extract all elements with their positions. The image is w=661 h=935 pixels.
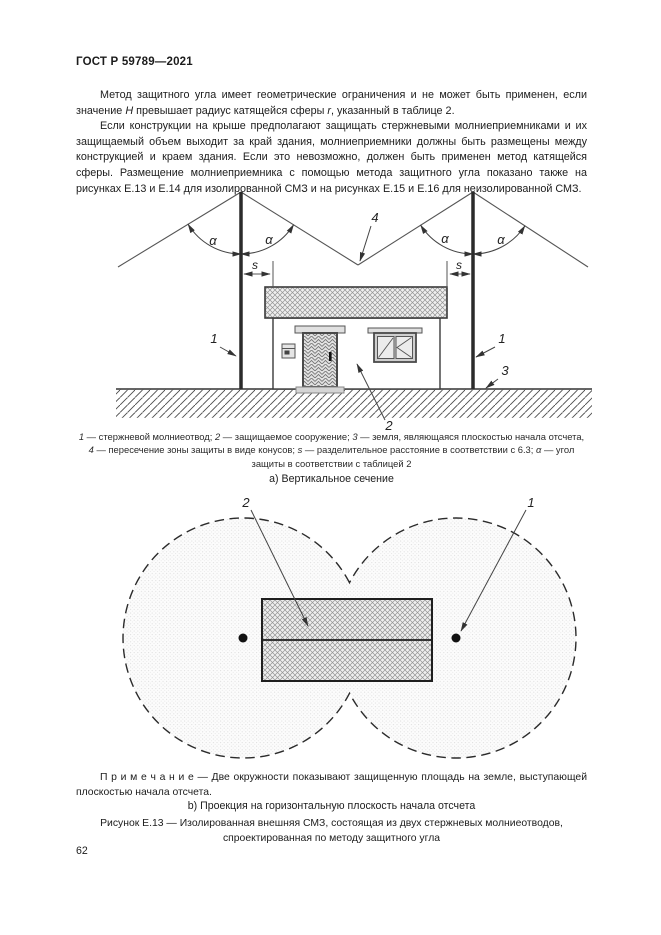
cone-line-right-outer <box>473 192 588 267</box>
mailbox-slot <box>285 351 290 355</box>
figure-a-vertical-section: α α α α s <box>0 185 661 435</box>
separation-label: s <box>252 258 258 272</box>
alpha-label: α <box>209 233 217 248</box>
ground-number-label: 3 <box>501 363 509 378</box>
page-number: 62 <box>76 845 88 857</box>
document-page: ГОСТ Р 59789—2021 Метод защитного угла и… <box>0 0 661 935</box>
ground-hatching <box>116 390 592 418</box>
leader-rod-right <box>476 347 495 357</box>
alpha-label: α <box>497 232 505 247</box>
legend-text: — пересечение зоны защиты в виде конусов… <box>94 444 298 455</box>
rod-number-label: 1 <box>210 331 217 346</box>
rod-position-right <box>452 634 461 643</box>
cone-line-right-inner <box>358 192 473 265</box>
figure-b-horizontal-projection: 2 1 <box>0 488 661 788</box>
window-pane-right <box>396 337 413 359</box>
legend-text: — стержневой молниеотвод; <box>84 431 215 442</box>
cones-number-label: 4 <box>371 210 378 225</box>
door-canopy <box>295 326 345 333</box>
building-number-label: 2 <box>241 495 250 510</box>
rod-position-left <box>239 634 248 643</box>
subcaption-a: а) Вертикальное сечение <box>76 473 587 485</box>
body-text: Метод защитного угла имеет геометрически… <box>76 88 587 197</box>
leader-rod-left <box>220 347 236 356</box>
separation-dimension-left <box>244 261 273 288</box>
building-roof <box>265 287 447 318</box>
note-paragraph: П р и м е ч а н и е — Две окружности пок… <box>76 770 587 800</box>
symbol-H: H <box>125 105 133 117</box>
alpha-label: α <box>265 232 273 247</box>
door-handle <box>329 352 332 361</box>
leader-ground <box>486 379 498 388</box>
separation-label: s <box>456 258 462 272</box>
paragraph-1-text: превышает радиус катящейся сферы <box>133 105 327 117</box>
note-block: П р и м е ч а н и е — Две окружности пок… <box>76 770 587 800</box>
alpha-label: α <box>441 231 449 246</box>
protected-building <box>265 287 447 393</box>
paragraph-1-text: , указанный в таблице 2. <box>331 105 455 117</box>
cone-line-left-outer <box>118 192 241 267</box>
door <box>303 333 337 387</box>
figure-caption: Рисунок Е.13 — Изолированная внешняя СМЗ… <box>76 816 587 846</box>
ground <box>116 389 592 418</box>
note-label: П р и м е ч а н и е <box>100 772 194 783</box>
cone-line-left-inner <box>241 192 358 265</box>
rod-number-label: 1 <box>498 331 505 346</box>
standard-number-header: ГОСТ Р 59789—2021 <box>76 56 193 68</box>
subcaption-b: b) Проекция на горизонтальную плоскость … <box>76 800 587 812</box>
legend-text: — разделительное расстояние в соответств… <box>302 444 536 455</box>
legend-text: — земля, являющаяся плоскостью начала от… <box>358 431 585 442</box>
door-step <box>296 387 344 393</box>
paragraph-1: Метод защитного угла имеет геометрически… <box>76 88 587 119</box>
leader-cones <box>360 226 371 261</box>
legend-text: — защищаемое сооружение; <box>220 431 352 442</box>
figure-legend: 1 — стержневой молниеотвод; 2 — защищаем… <box>76 430 587 470</box>
rod-number-label: 1 <box>527 495 534 510</box>
protection-cone-lines <box>118 192 588 267</box>
